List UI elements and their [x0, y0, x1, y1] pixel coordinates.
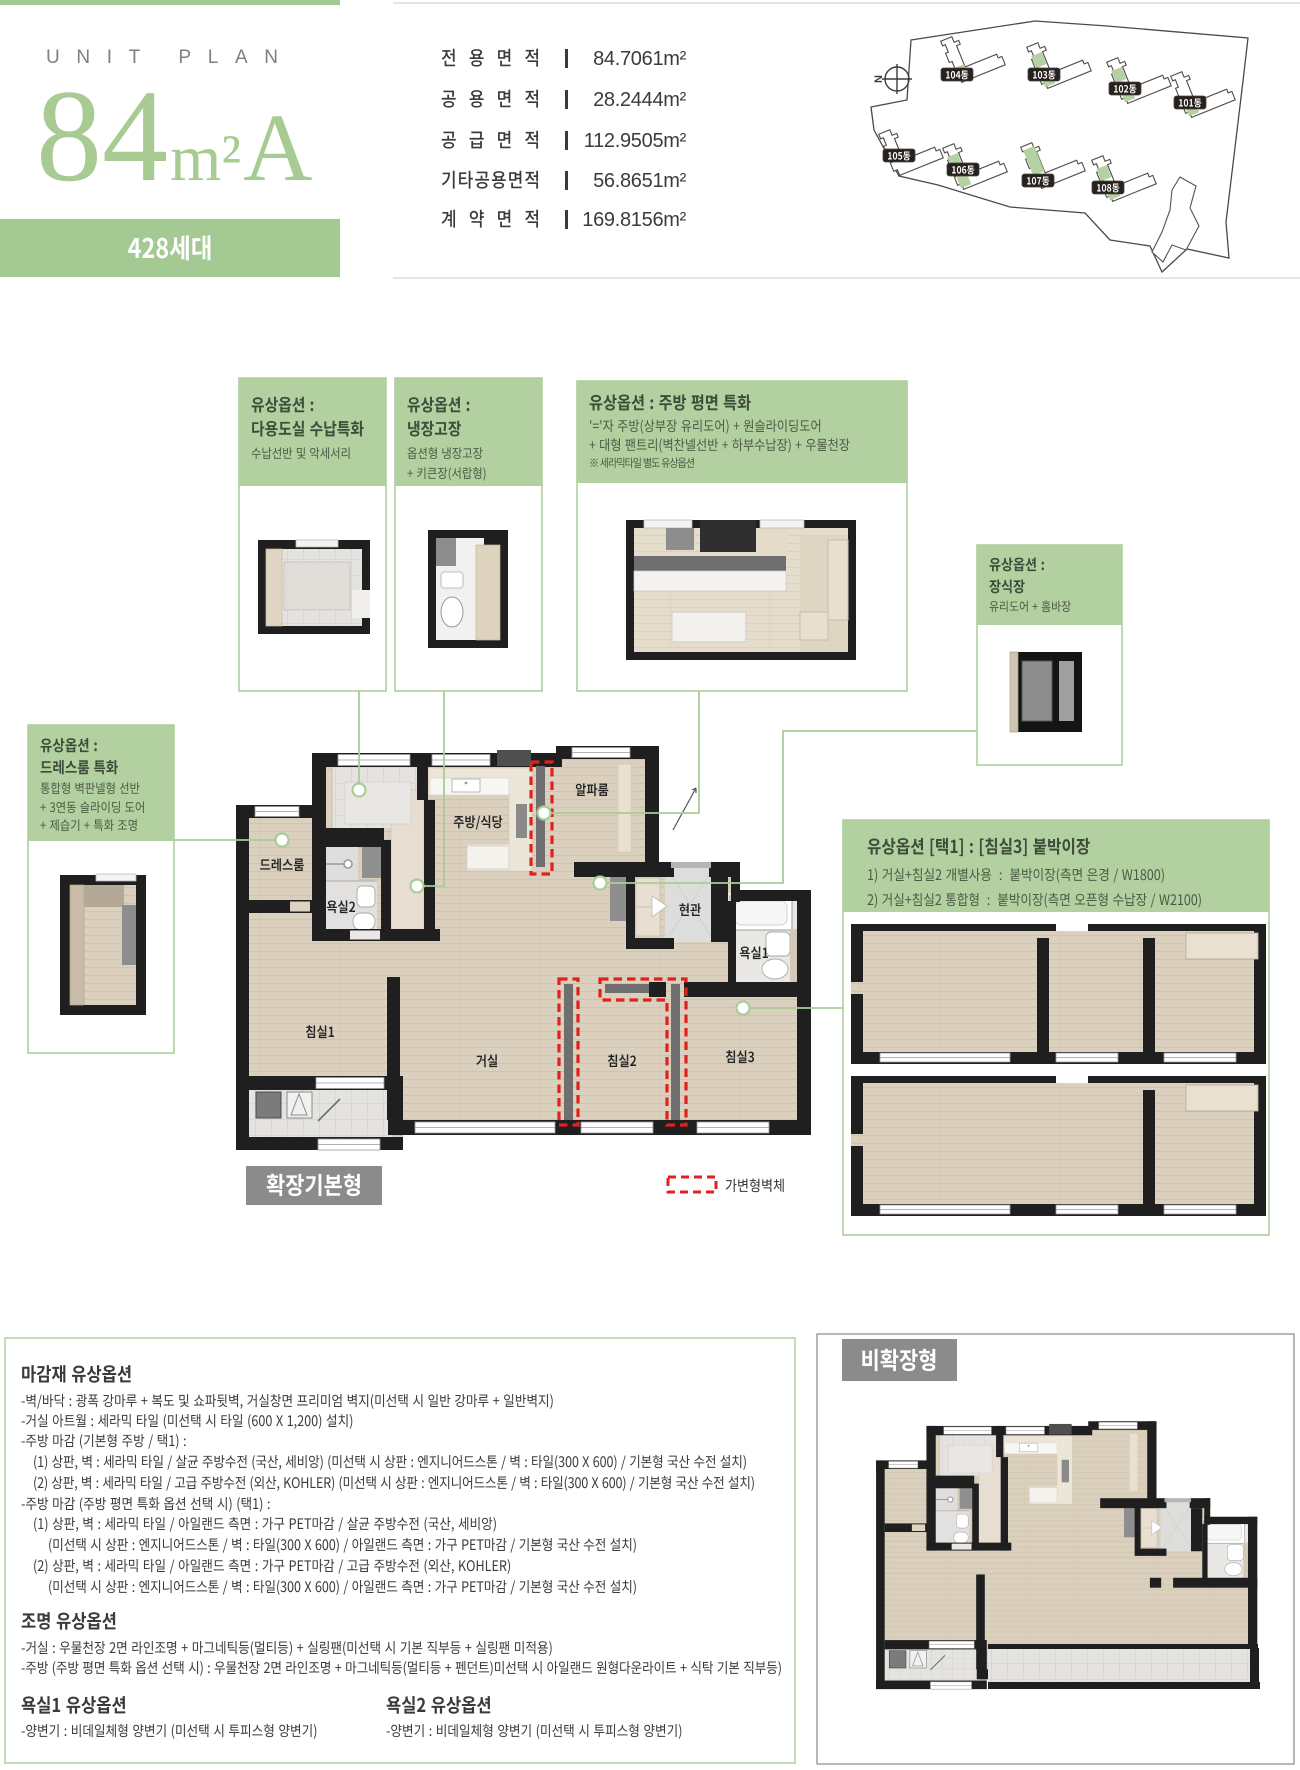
- svg-text:N: N: [873, 75, 885, 83]
- svg-text:112.9505m²: 112.9505m²: [584, 130, 687, 152]
- svg-text:169.8156m²: 169.8156m²: [582, 209, 686, 231]
- svg-text:84.7061m²: 84.7061m²: [593, 48, 687, 70]
- svg-text:56.8651m²: 56.8651m²: [593, 170, 687, 192]
- svg-text:28.2444m²: 28.2444m²: [593, 89, 687, 111]
